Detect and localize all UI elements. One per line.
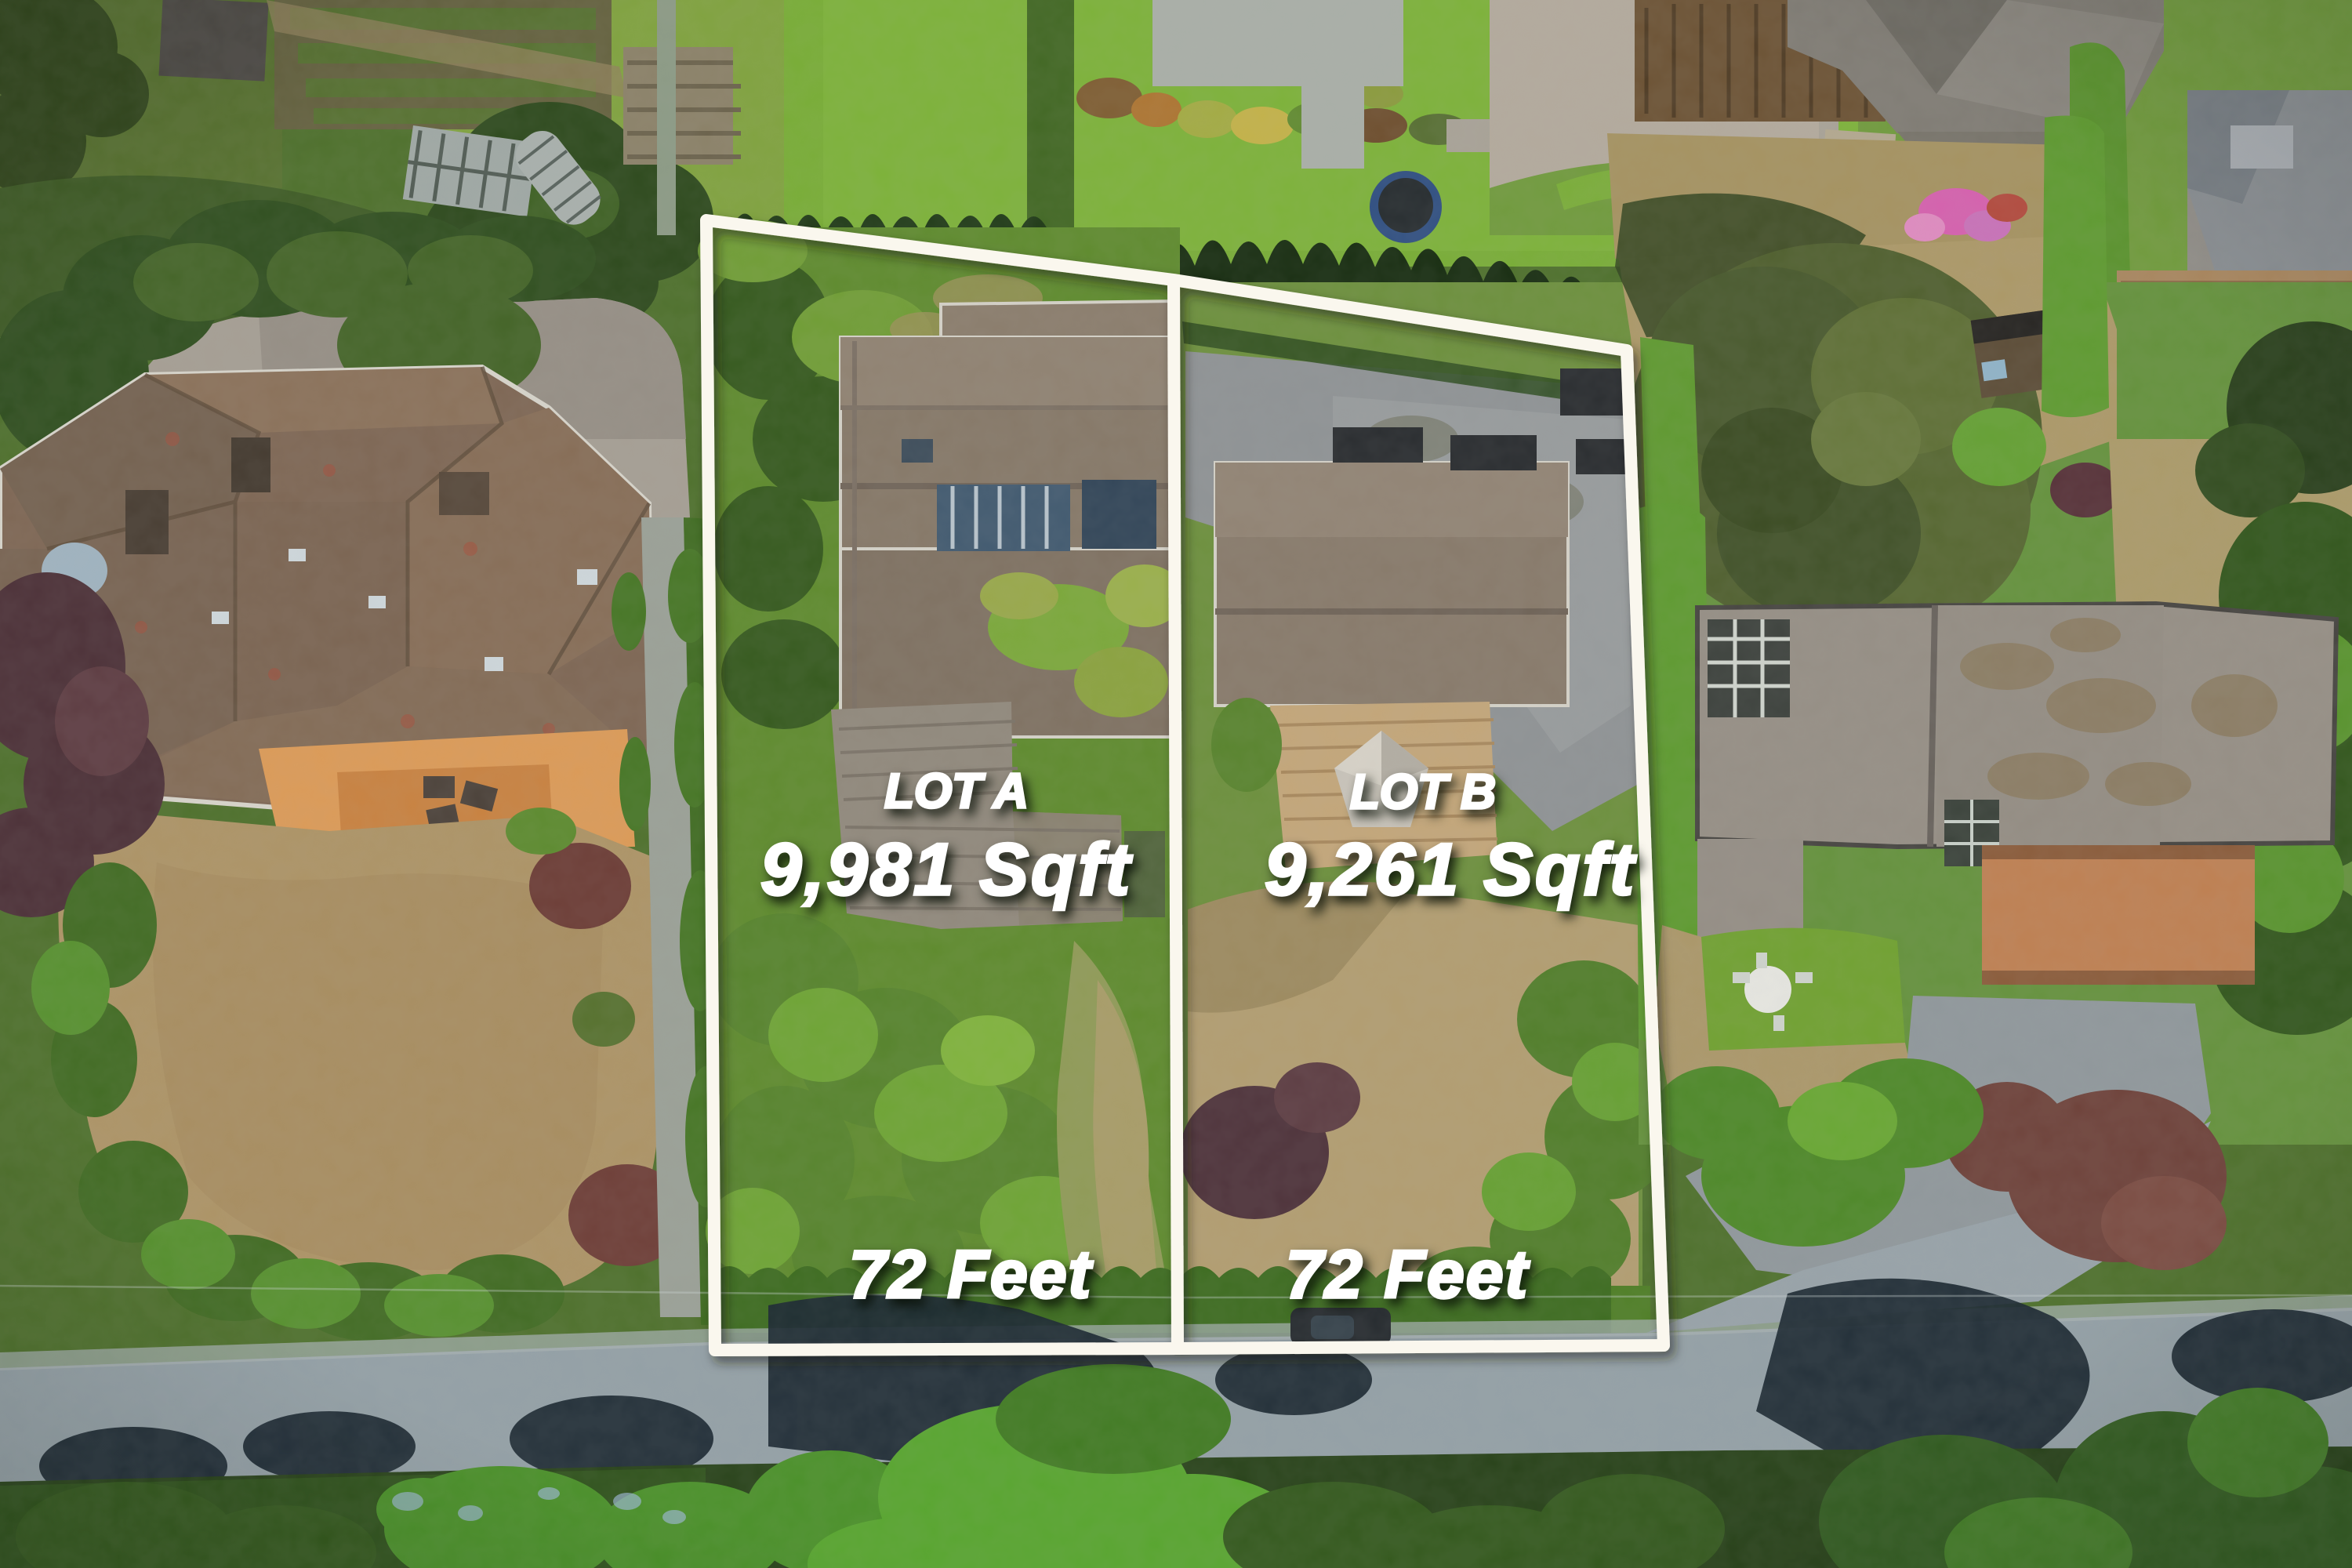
svg-text:9,981 Sqft: 9,981 Sqft [760, 828, 1133, 910]
svg-text:72 Feet: 72 Feet [1286, 1237, 1530, 1312]
svg-text:9,261 Sqft: 9,261 Sqft [1265, 828, 1637, 910]
svg-text:LOT A: LOT A [884, 764, 1029, 818]
svg-text:72 Feet: 72 Feet [849, 1237, 1094, 1312]
svg-text:LOT B: LOT B [1350, 765, 1496, 819]
